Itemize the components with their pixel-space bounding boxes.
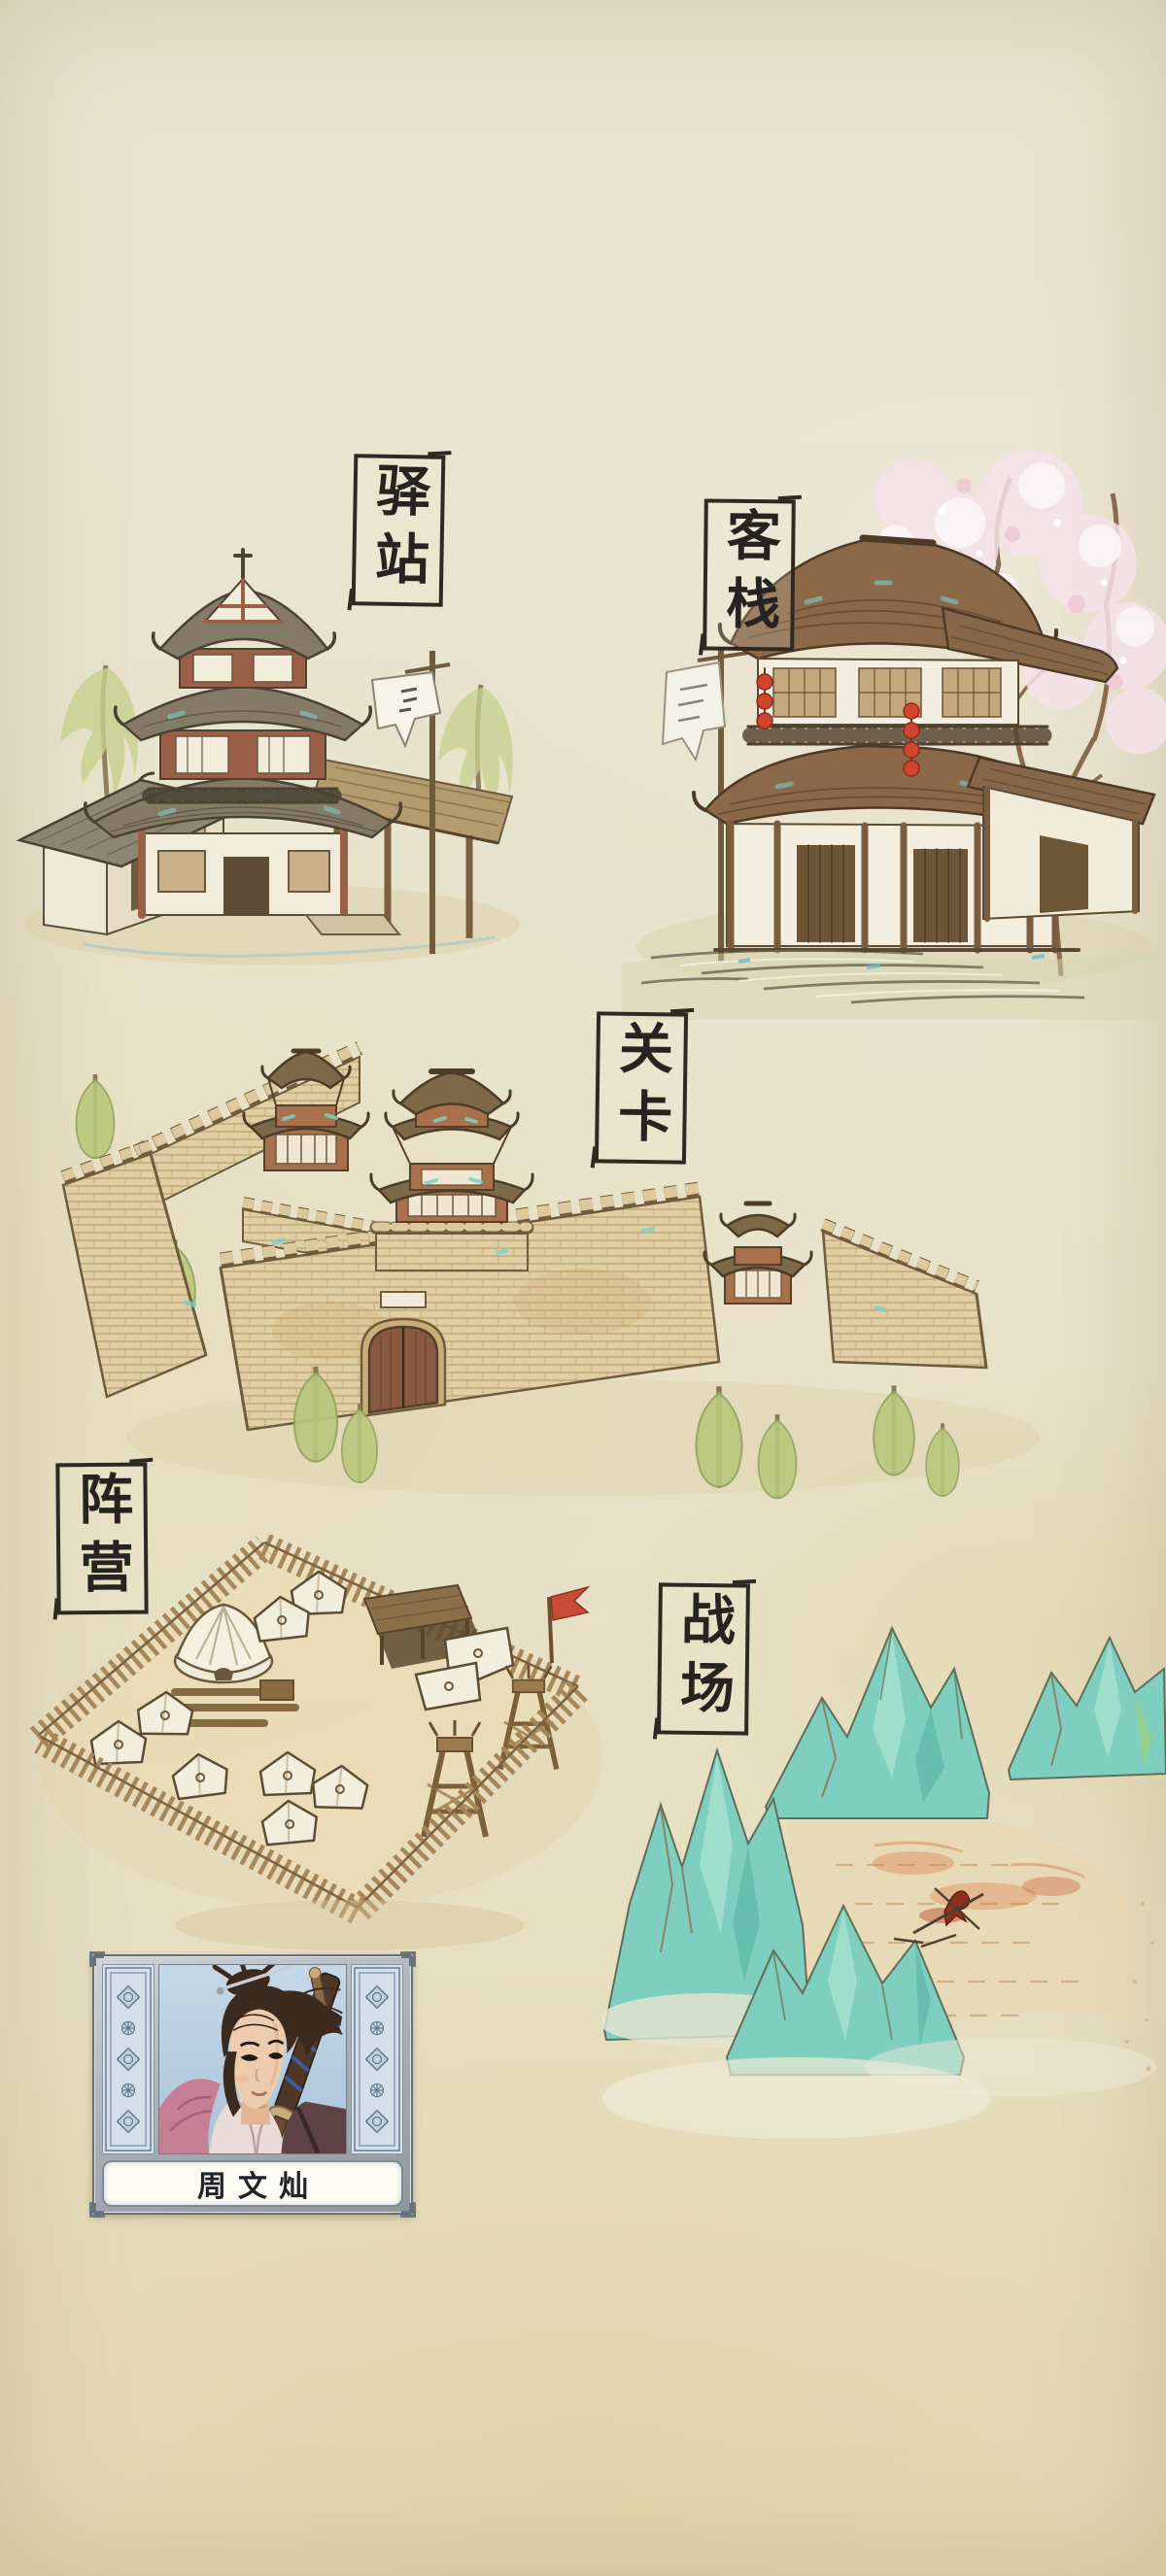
gate-plaque [381, 1292, 426, 1307]
mountain-cluster-right [1009, 1638, 1166, 1779]
battle-stain [1022, 1877, 1080, 1896]
camp-flag [549, 1587, 588, 1663]
character-card[interactable]: 周文灿 [92, 1954, 413, 2215]
battle-stain [930, 1882, 1037, 1910]
fortress-right-wall [823, 1224, 986, 1368]
location-label-battlefield[interactable]: 战场 [657, 1582, 750, 1735]
inn-banner [663, 662, 725, 760]
battlefield-label-text: 战场 [675, 1591, 732, 1728]
post-station-illustration[interactable] [15, 505, 544, 971]
camp-shadow [175, 1900, 525, 1950]
post-station-label-text: 驿站 [370, 462, 427, 599]
location-label-inn[interactable]: 客栈 [703, 499, 796, 652]
character-name-plate: 周文灿 [102, 2160, 403, 2207]
card-corner-ornament [400, 1951, 416, 1967]
game-map: 驿站 客栈 关卡 阵营 战场 [0, 0, 1166, 2576]
location-label-checkpoint[interactable]: 关卡 [595, 1011, 688, 1164]
battle-stain [873, 1851, 954, 1875]
camp-label-text: 阵营 [74, 1471, 129, 1607]
character-name: 周文灿 [186, 2162, 320, 2205]
checkpoint-corner-tower [704, 1203, 811, 1304]
card-lattice-right [351, 1964, 403, 2154]
card-corner-ornament [400, 2202, 416, 2218]
inn-label-text: 客栈 [721, 507, 776, 644]
card-corner-ornament [89, 1951, 105, 1967]
checkpoint-label-text: 关卡 [613, 1020, 669, 1157]
location-label-camp[interactable]: 阵营 [55, 1463, 148, 1615]
card-lattice-left [102, 1964, 154, 2154]
inn-lanterns-left [757, 668, 772, 729]
card-corner-ornament [89, 2202, 105, 2218]
checkpoint-main-tower [371, 1071, 532, 1271]
checkpoint-illustration[interactable] [39, 1010, 1147, 1515]
location-label-post-station[interactable]: 驿站 [352, 454, 446, 607]
mountain-cluster-top [766, 1628, 989, 1818]
character-portrait [158, 1964, 347, 2154]
